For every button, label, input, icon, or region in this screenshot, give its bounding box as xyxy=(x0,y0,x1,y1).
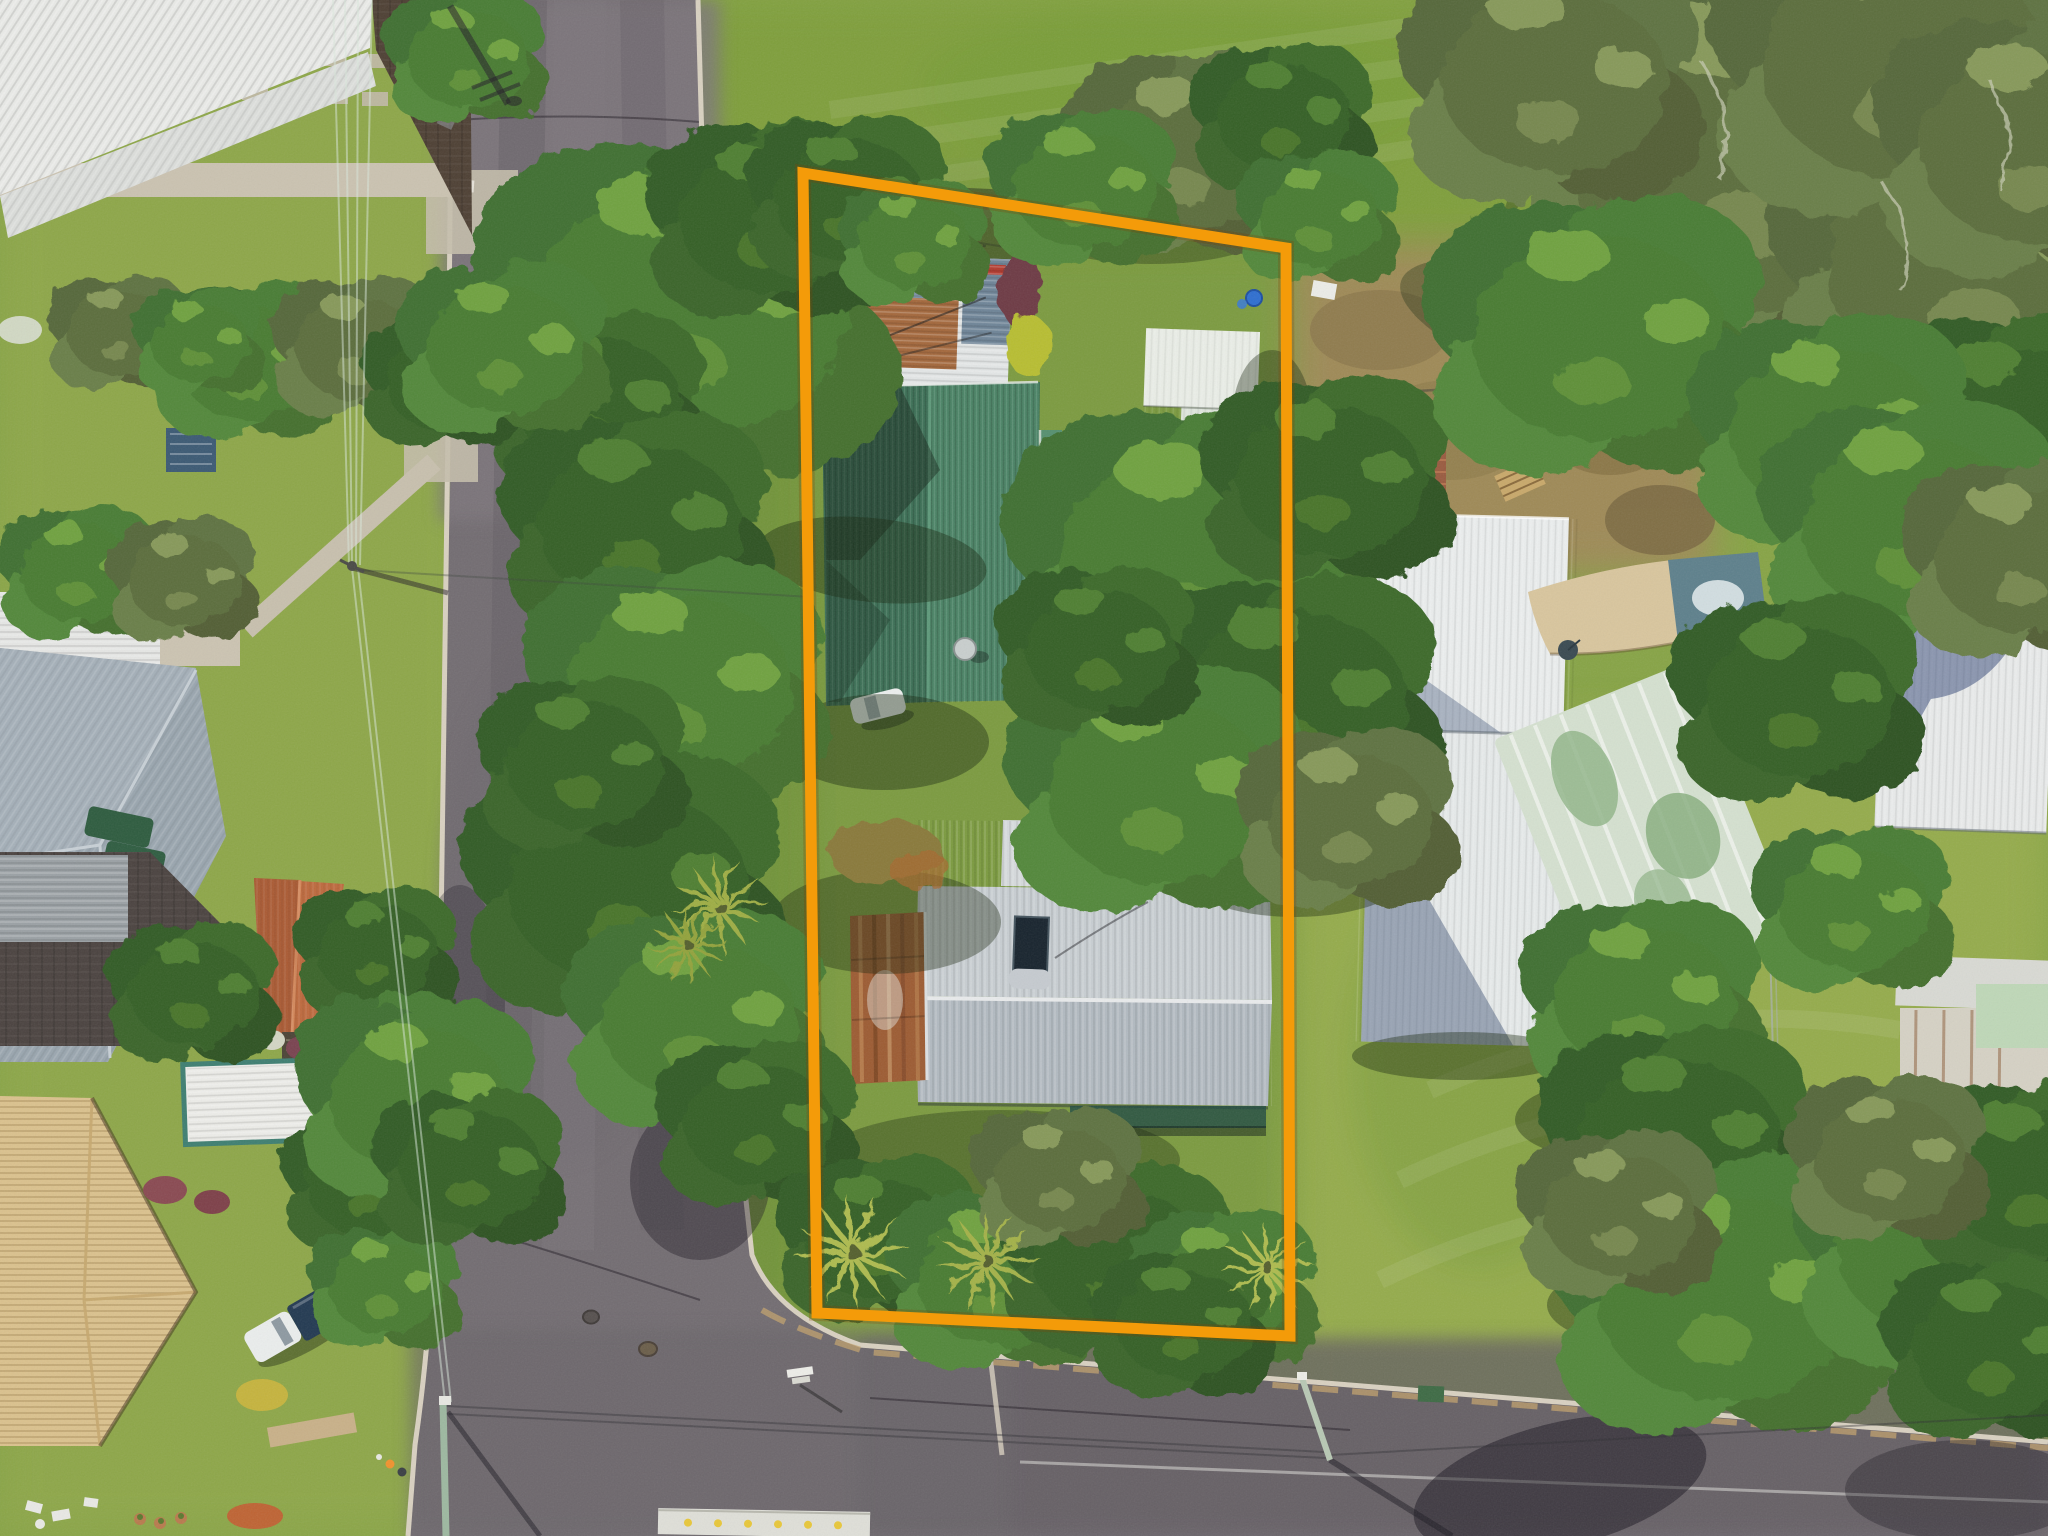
aerial-photo: Top-down drone photo of a residential co… xyxy=(0,0,2048,1536)
photo-grain xyxy=(2,2,2046,1534)
aerial-photo-stage: Top-down drone photo of a residential co… xyxy=(0,0,2048,1536)
